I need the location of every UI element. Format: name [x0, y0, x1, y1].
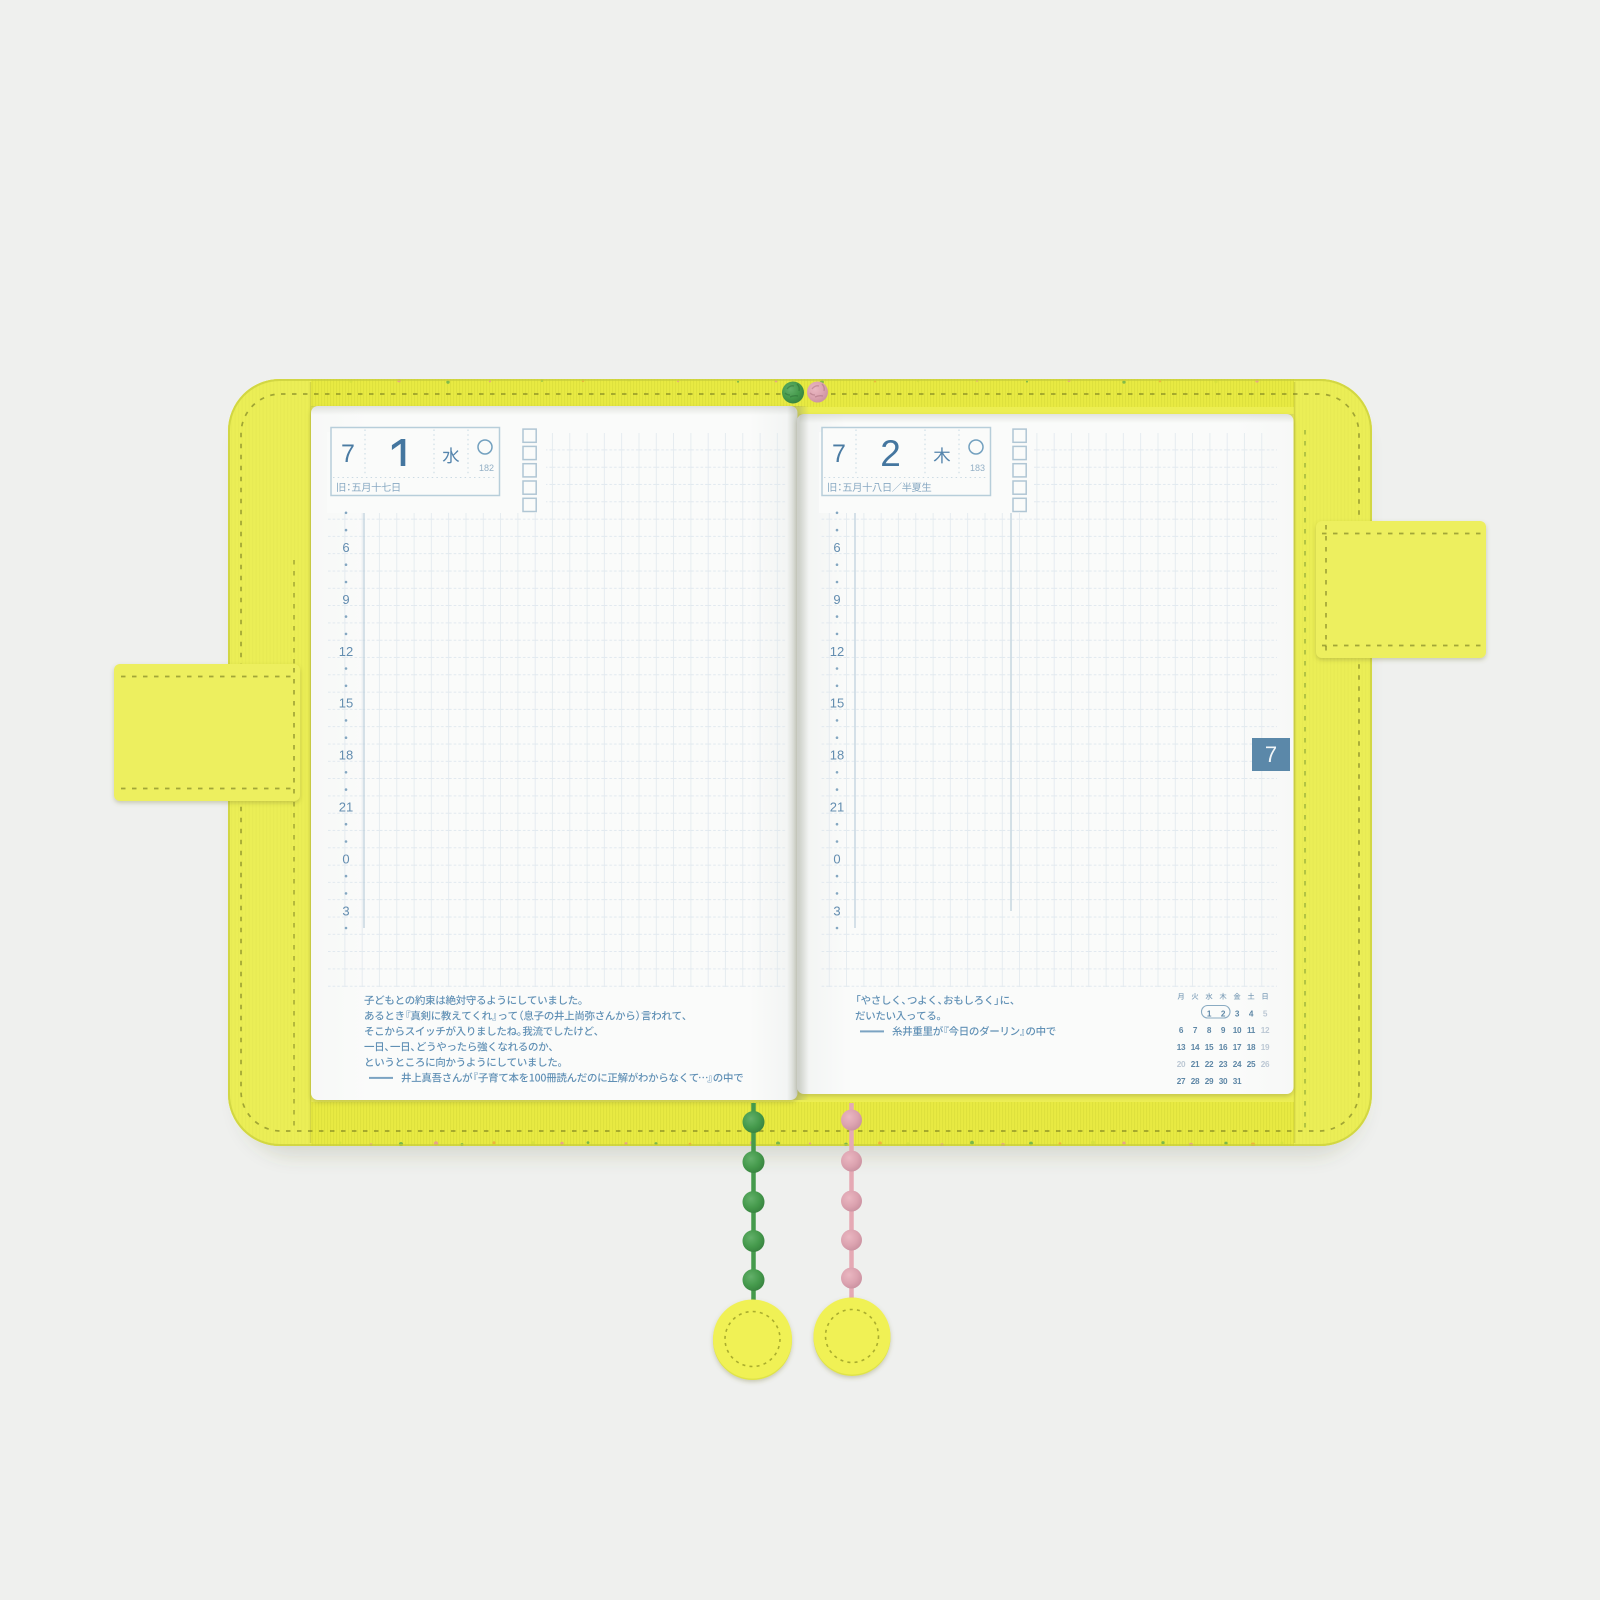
- svg-text:3: 3: [833, 903, 840, 918]
- svg-text:11: 11: [1247, 1026, 1256, 1035]
- svg-text:13: 13: [1177, 1043, 1186, 1052]
- svg-text:20: 20: [1177, 1060, 1186, 1069]
- svg-text:31: 31: [1233, 1077, 1242, 1086]
- svg-text:21: 21: [1191, 1060, 1200, 1069]
- svg-text:27: 27: [1177, 1077, 1186, 1086]
- svg-text:7: 7: [1193, 1026, 1198, 1035]
- svg-text:25: 25: [1247, 1060, 1256, 1069]
- svg-text:21: 21: [339, 800, 353, 815]
- svg-text:19: 19: [1261, 1043, 1270, 1052]
- svg-text:7: 7: [341, 440, 355, 468]
- svg-text:10: 10: [1233, 1026, 1242, 1035]
- svg-text:3: 3: [1235, 1009, 1240, 1018]
- svg-text:4: 4: [1249, 1009, 1254, 1018]
- svg-text:5: 5: [1263, 1009, 1268, 1018]
- svg-text:6: 6: [1179, 1026, 1184, 1035]
- svg-text:23: 23: [1219, 1060, 1228, 1069]
- svg-text:8: 8: [1207, 1026, 1212, 1035]
- svg-text:26: 26: [1261, 1060, 1270, 1069]
- svg-text:21: 21: [830, 800, 844, 815]
- svg-text:6: 6: [342, 540, 349, 555]
- svg-text:7: 7: [1265, 742, 1277, 767]
- svg-text:3: 3: [342, 903, 349, 918]
- svg-text:18: 18: [1247, 1043, 1256, 1052]
- svg-text:28: 28: [1191, 1077, 1200, 1086]
- svg-text:183: 183: [970, 463, 985, 473]
- svg-text:7: 7: [832, 440, 846, 468]
- svg-text:15: 15: [830, 696, 844, 711]
- svg-text:0: 0: [833, 851, 840, 866]
- svg-text:16: 16: [1219, 1043, 1228, 1052]
- svg-text:0: 0: [342, 851, 349, 866]
- svg-text:15: 15: [339, 696, 353, 711]
- svg-text:14: 14: [1191, 1043, 1200, 1052]
- svg-text:12: 12: [1261, 1026, 1270, 1035]
- svg-text:17: 17: [1233, 1043, 1242, 1052]
- svg-text:15: 15: [1205, 1043, 1214, 1052]
- svg-text:9: 9: [1221, 1026, 1226, 1035]
- svg-text:9: 9: [833, 592, 840, 607]
- svg-text:1: 1: [1207, 1009, 1212, 1018]
- svg-text:30: 30: [1219, 1077, 1228, 1086]
- svg-text:6: 6: [833, 540, 840, 555]
- svg-text:18: 18: [830, 748, 844, 763]
- svg-text:182: 182: [479, 463, 494, 473]
- svg-text:29: 29: [1205, 1077, 1214, 1086]
- svg-text:18: 18: [339, 748, 353, 763]
- svg-text:2: 2: [880, 433, 901, 474]
- svg-text:2: 2: [1221, 1009, 1226, 1018]
- svg-text:12: 12: [339, 644, 353, 659]
- svg-text:9: 9: [342, 592, 349, 607]
- svg-text:22: 22: [1205, 1060, 1214, 1069]
- svg-text:24: 24: [1233, 1060, 1242, 1069]
- svg-text:12: 12: [830, 644, 844, 659]
